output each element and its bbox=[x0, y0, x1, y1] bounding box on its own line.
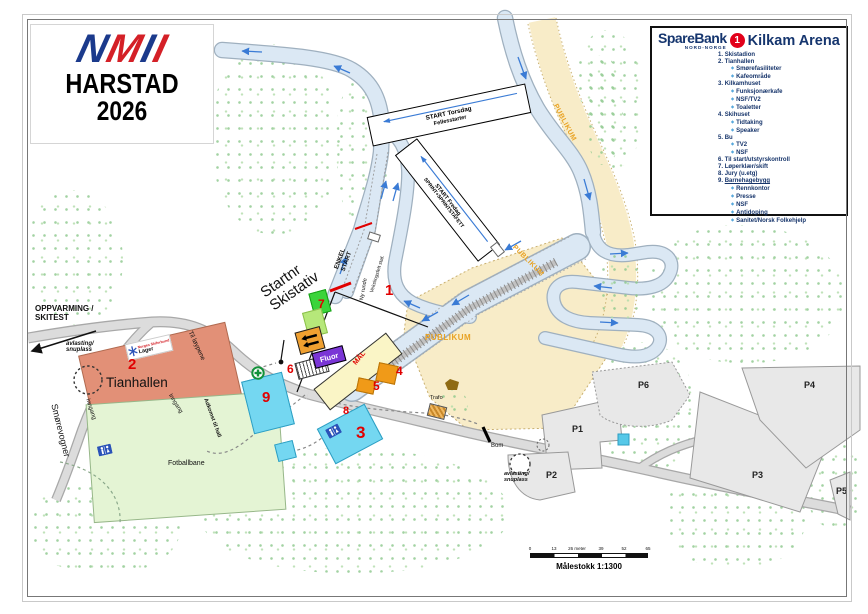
diamond-bullet-icon: ◆ bbox=[731, 141, 734, 146]
diamond-bullet-icon: ◆ bbox=[731, 185, 734, 190]
map-marker-5: 5 bbox=[373, 380, 380, 392]
ski-rack-arrows-icon bbox=[298, 331, 321, 351]
map-marker-8: 8 bbox=[343, 406, 349, 417]
small-blue-structure bbox=[618, 434, 629, 445]
parking-label-p2: P2 bbox=[546, 470, 557, 480]
map-marker-7: 7 bbox=[318, 298, 325, 310]
diamond-bullet-icon: ◆ bbox=[731, 119, 734, 124]
fotballbane-label: Fotballbane bbox=[168, 460, 205, 468]
map-marker-9: 9 bbox=[262, 390, 270, 405]
avlasting-label: avlasting/snuplass bbox=[504, 472, 529, 484]
arena-map-page: NMII HARSTAD 2026 SpareBank NORD-NORGE 1… bbox=[0, 0, 868, 614]
nm-logo: NMII bbox=[73, 29, 171, 69]
parking-label-p1: P1 bbox=[572, 424, 583, 434]
diamond-bullet-icon: ◆ bbox=[731, 88, 734, 93]
event-year: 2026 bbox=[46, 98, 199, 125]
oppvarming-label: OPPVARMING /SKITEST bbox=[35, 305, 94, 322]
diamond-bullet-icon: ◆ bbox=[731, 209, 734, 214]
bom-label: Bom bbox=[491, 443, 503, 449]
arena-title: Kilkam Arena bbox=[748, 33, 840, 49]
first-aid-icon bbox=[251, 366, 265, 385]
forest-patch bbox=[585, 55, 623, 165]
diamond-bullet-icon: ◆ bbox=[731, 127, 734, 132]
trafo-label: Trafo bbox=[430, 396, 443, 402]
map-marker-4: 4 bbox=[396, 365, 403, 377]
map-marker-2: 2 bbox=[128, 357, 136, 372]
diamond-bullet-icon: ◆ bbox=[731, 149, 734, 154]
bank-name: SpareBank bbox=[658, 32, 727, 45]
publikum-label: PUBLIKUM bbox=[425, 333, 471, 342]
event-city: HARSTAD bbox=[46, 69, 199, 98]
tianhallen-label: Tianhallen bbox=[106, 376, 168, 391]
event-logo-box: NMII HARSTAD 2026 bbox=[30, 24, 214, 144]
diamond-bullet-icon: ◆ bbox=[731, 217, 734, 222]
point-marker bbox=[279, 360, 284, 365]
map-marker-1: 1 bbox=[385, 283, 393, 298]
legend-list: 1. Skistadion 2. Tianhallen ◆Smørefasili… bbox=[718, 52, 842, 225]
diamond-bullet-icon: ◆ bbox=[731, 73, 734, 78]
diamond-bullet-icon: ◆ bbox=[731, 201, 734, 206]
parking-label-p5: P5 bbox=[836, 486, 847, 496]
parking-label-p4: P4 bbox=[804, 380, 815, 390]
forest-patch bbox=[598, 250, 643, 320]
sparebank-logo: SpareBank NORD-NORGE bbox=[658, 32, 727, 50]
parking-label-p3: P3 bbox=[752, 470, 763, 480]
parking-label-p6: P6 bbox=[638, 380, 649, 390]
sparebank-1-badge-icon: 1 bbox=[730, 33, 745, 48]
diamond-bullet-icon: ◆ bbox=[731, 96, 734, 101]
diamond-bullet-icon: ◆ bbox=[731, 65, 734, 70]
avlasting-label: avlasting/snuplass bbox=[66, 341, 94, 354]
scale-caption: Målestokk 1:1300 bbox=[530, 562, 648, 571]
fluor-label: Fluor bbox=[319, 350, 339, 364]
map-marker-6: 6 bbox=[287, 363, 294, 375]
diamond-bullet-icon: ◆ bbox=[731, 104, 734, 109]
map-marker-3: 3 bbox=[356, 424, 365, 441]
diamond-bullet-icon: ◆ bbox=[731, 193, 734, 198]
legend-box: SpareBank NORD-NORGE 1 Kilkam Arena 1. S… bbox=[650, 26, 848, 216]
